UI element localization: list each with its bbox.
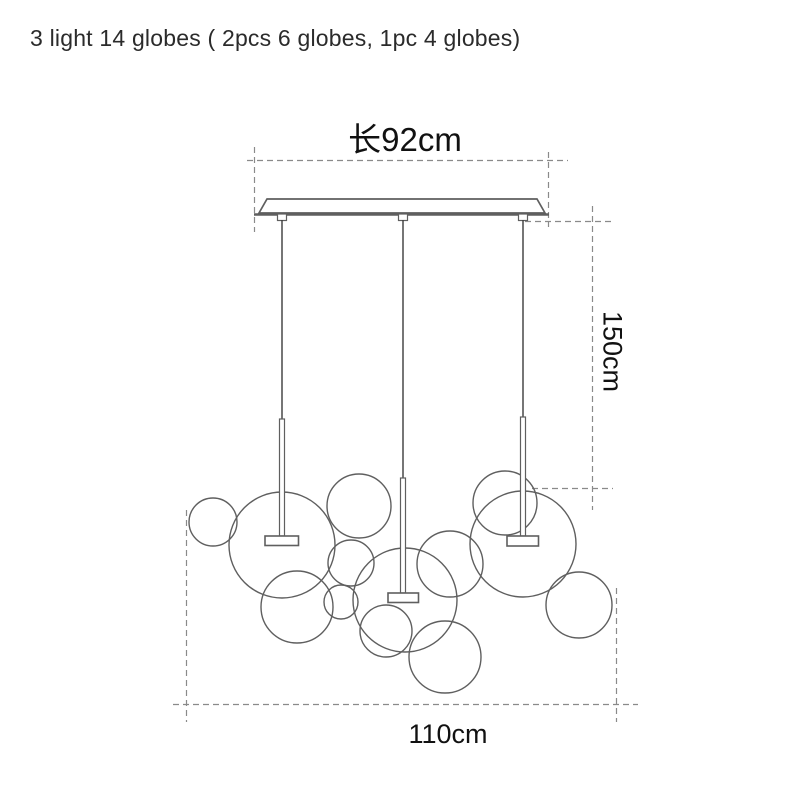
ceiling-canopy [259, 199, 545, 213]
light-plate [265, 536, 299, 546]
pendant-rod [280, 419, 285, 536]
pendant-rod [401, 478, 406, 593]
light-plate [388, 593, 419, 603]
globe-circle [546, 572, 612, 638]
globe-circle [261, 571, 333, 643]
dimension-label-length: 长92cm [340, 113, 470, 161]
dimension-label-width: 110cm [398, 719, 498, 750]
globe-circle [360, 605, 412, 657]
globe-circle [417, 531, 483, 597]
globe-circle [473, 471, 537, 535]
light-plate [507, 536, 539, 546]
pendant-rod [521, 417, 526, 536]
globe-circle [328, 540, 374, 586]
wire-connector [278, 214, 287, 221]
wire-connector [399, 214, 408, 221]
globe-circle [409, 621, 481, 693]
dimension-label-height: 150cm [597, 300, 628, 404]
wire-connector [519, 214, 528, 221]
globe-circle [327, 474, 391, 538]
